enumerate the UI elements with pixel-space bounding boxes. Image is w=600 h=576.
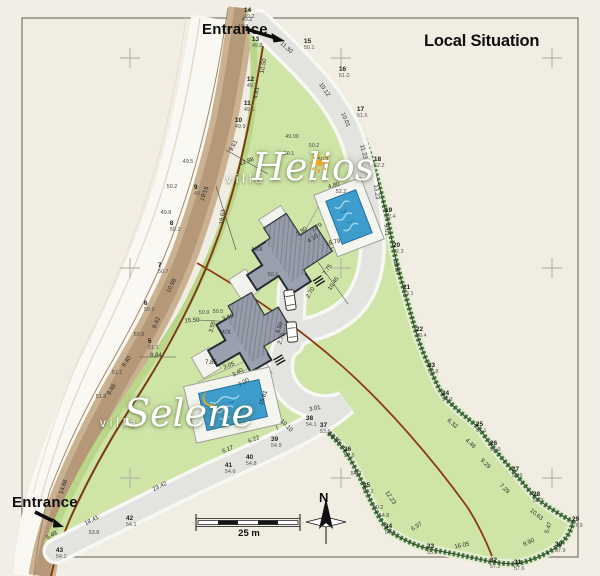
car: [286, 322, 298, 343]
north-label: N: [319, 490, 328, 505]
villa-selene-label: villa Selene: [96, 392, 266, 462]
villa-helios-label: villa Helios: [224, 146, 394, 216]
entrance-label-top: Entrance: [202, 21, 268, 38]
building-selene-label: H/X: [220, 329, 232, 336]
villa-selene-name: Selene: [124, 394, 254, 432]
entrance-label-bottom: Entrance: [12, 494, 78, 511]
car: [284, 289, 297, 310]
scale-bar-label: 25 m: [230, 528, 268, 539]
building-helios-label: H/X: [252, 246, 264, 253]
site-plan: H/X H/X: [0, 0, 600, 576]
sun-icon: [308, 152, 330, 174]
moon-icon: [200, 390, 220, 410]
map-graphics: H/X H/X: [0, 0, 600, 576]
page-title: Local Situation: [424, 32, 539, 51]
